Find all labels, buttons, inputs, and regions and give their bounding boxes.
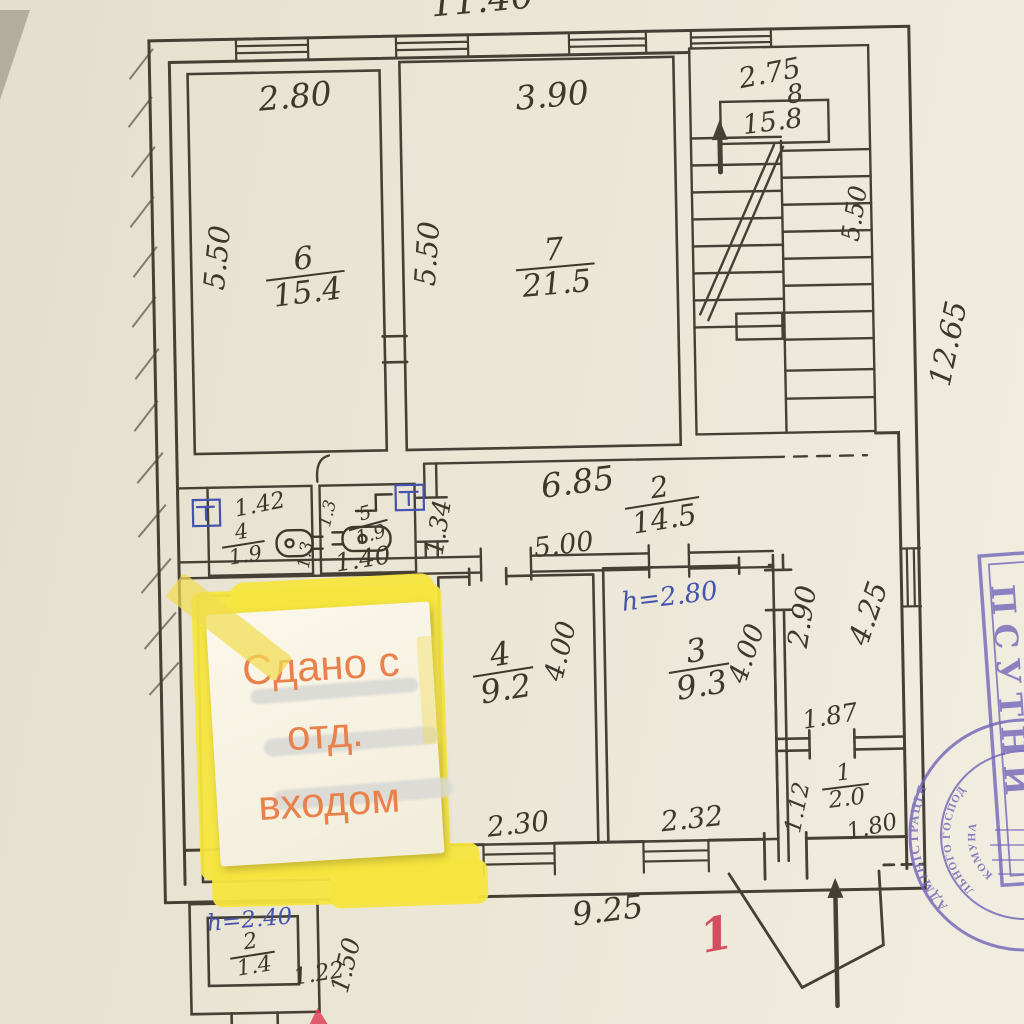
dim-room7-height: 5.50 [408,220,446,287]
note-line-2: отд. [286,711,365,758]
room-corridor-number: 2 [648,471,671,504]
dim-room6-width: 2.80 [257,73,334,118]
room-6-number: 6 [292,242,316,276]
room-label-3: 3 9.3 [664,630,735,707]
floor-plan-drawing: 11.40 2.80 3.90 2.75 8 15.8 5.50 5.50 5.… [0,0,1024,1024]
dim-13-a: 1.3 [294,540,318,570]
room-1-number: 1 [835,761,852,787]
room-label-1: 1 2.0 [819,759,871,814]
plan-linework [0,0,1024,1024]
yellow-blob-bottom-right [329,859,488,908]
dim-room4-width: 2.30 [485,804,550,843]
note-line-3: входом [257,777,401,828]
room-label-7: 7 21.5 [513,231,598,304]
room-label-tambour: 2 1.4 [226,928,278,982]
room-4-number: 4 [488,637,513,673]
room-wc-number: 4 [233,521,250,545]
room-label-wc: 4 1.9 [219,518,269,570]
entrance-porch [728,830,925,1008]
stair-direction-arrow [712,120,728,140]
entrance-arrow [827,878,843,898]
room-label-corridor: 2 14.5 [620,466,703,539]
dim-room3-width: 2.32 [659,799,724,838]
room-tambour-number: 2 [242,930,259,955]
dim-room7-width: 3.90 [514,72,591,117]
dashed-wall [771,455,867,457]
dim-room6-height: 5.50 [197,224,237,292]
red-check-mark [307,1008,329,1024]
room-3-number: 3 [684,633,709,669]
scanned-floor-plan: 11.40 2.80 3.90 2.75 8 15.8 5.50 5.50 5.… [0,0,1024,1024]
room-7-number: 7 [543,233,566,267]
room-label-6: 6 15.4 [262,238,349,314]
room-7-area: 21.5 [516,263,598,304]
room-label-4: 4 9.2 [468,634,539,711]
room-4-area: 9.2 [473,666,539,710]
corridor-walls [177,445,869,586]
